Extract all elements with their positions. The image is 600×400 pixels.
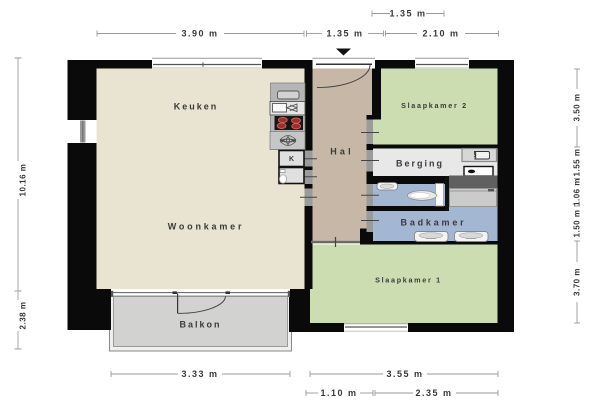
svg-text:Slaapkamer 2: Slaapkamer 2: [401, 101, 468, 110]
svg-text:1.10 m: 1.10 m: [320, 388, 357, 398]
svg-text:10.16 m: 10.16 m: [19, 164, 28, 197]
svg-text:2.35 m: 2.35 m: [415, 388, 452, 398]
svg-text:1.06 m: 1.06 m: [573, 178, 582, 206]
svg-text:1.35 m: 1.35 m: [389, 9, 426, 19]
svg-text:3.55 m: 3.55 m: [386, 369, 423, 379]
svg-text:Hal: Hal: [330, 147, 354, 157]
svg-text:K: K: [289, 156, 294, 163]
svg-text:Badkamer: Badkamer: [401, 218, 467, 228]
svg-text:3.50 m: 3.50 m: [573, 94, 582, 122]
svg-text:1.50 m: 1.50 m: [573, 210, 582, 238]
svg-text:3.33 m: 3.33 m: [181, 369, 218, 379]
svg-text:Keuken: Keuken: [174, 102, 219, 112]
svg-text:3.90 m: 3.90 m: [181, 29, 218, 39]
svg-text:3.70 m: 3.70 m: [573, 268, 582, 296]
svg-text:2.10 m: 2.10 m: [422, 29, 459, 39]
svg-text:2.38 m: 2.38 m: [19, 302, 28, 330]
svg-text:Balkon: Balkon: [179, 320, 221, 330]
svg-text:1.35 m: 1.35 m: [326, 29, 363, 39]
svg-text:Woonkamer: Woonkamer: [168, 222, 245, 232]
svg-text:1.55 m: 1.55 m: [573, 149, 582, 177]
svg-text:Berging: Berging: [396, 159, 444, 169]
svg-text:Slaapkamer 1: Slaapkamer 1: [375, 276, 442, 285]
